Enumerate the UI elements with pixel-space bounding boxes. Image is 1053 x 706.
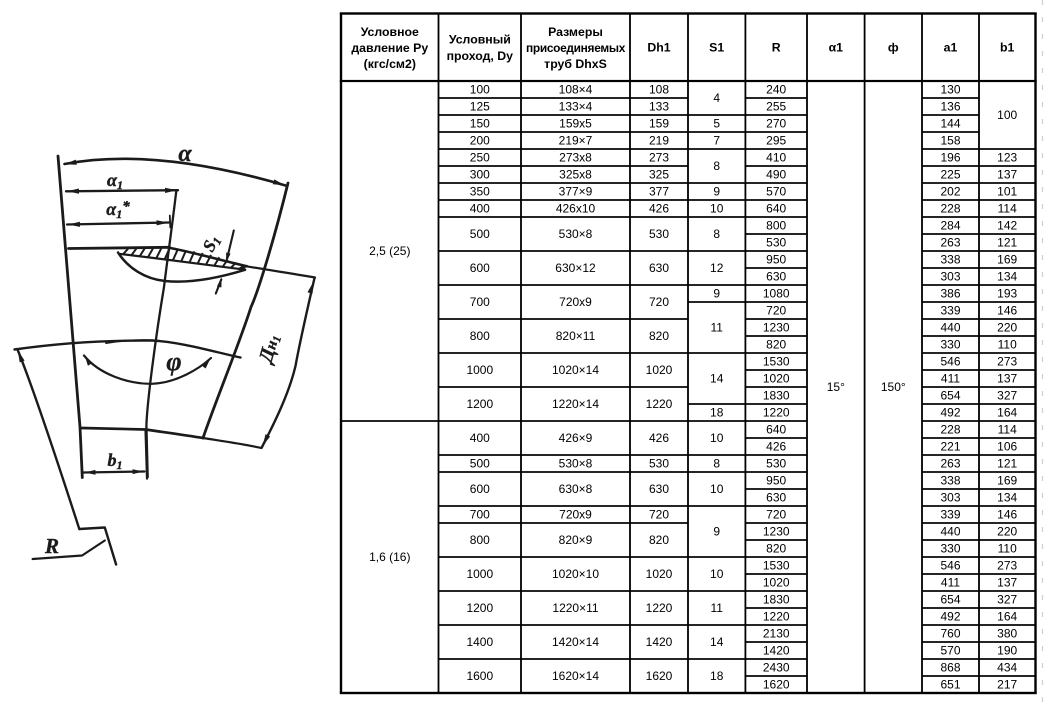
svg-text:221: 221 xyxy=(940,440,960,454)
svg-text:8: 8 xyxy=(713,457,720,471)
svg-text:110: 110 xyxy=(998,338,1017,352)
svg-text:1220: 1220 xyxy=(763,610,790,624)
svg-text:134: 134 xyxy=(997,491,1017,505)
svg-text:159: 159 xyxy=(649,117,669,131)
svg-text:377×9: 377×9 xyxy=(559,185,593,199)
svg-text:411: 411 xyxy=(941,372,960,386)
svg-text:800: 800 xyxy=(766,219,786,233)
svg-text:530: 530 xyxy=(649,457,669,471)
svg-text:820×11: 820×11 xyxy=(556,329,596,343)
svg-text:α1: α1 xyxy=(107,170,123,192)
svg-text:8: 8 xyxy=(713,227,720,241)
svg-text:800: 800 xyxy=(470,329,490,343)
svg-text:700: 700 xyxy=(470,508,490,522)
svg-text:1220×14: 1220×14 xyxy=(552,397,599,411)
svg-text:(кгс/см2): (кгс/см2) xyxy=(364,57,416,71)
svg-text:434: 434 xyxy=(997,661,1017,675)
svg-text:400: 400 xyxy=(470,202,490,216)
svg-text:7: 7 xyxy=(713,134,720,148)
svg-text:169: 169 xyxy=(997,474,1017,488)
svg-text:114: 114 xyxy=(998,202,1017,216)
svg-text:1000: 1000 xyxy=(466,363,493,377)
svg-text:164: 164 xyxy=(997,610,1017,624)
svg-text:273: 273 xyxy=(997,355,1017,369)
svg-text:1830: 1830 xyxy=(763,593,790,607)
svg-text:820×9: 820×9 xyxy=(559,533,593,547)
svg-text:α1*: α1* xyxy=(106,199,130,221)
svg-text:114: 114 xyxy=(998,423,1017,437)
svg-text:800: 800 xyxy=(470,533,490,547)
svg-text:2,5 (25): 2,5 (25) xyxy=(369,244,410,258)
svg-text:137: 137 xyxy=(997,372,1017,386)
svg-text:492: 492 xyxy=(940,406,960,420)
svg-text:263: 263 xyxy=(940,457,960,471)
svg-text:220: 220 xyxy=(997,525,1017,539)
svg-text:426×9: 426×9 xyxy=(559,431,593,445)
svg-text:386: 386 xyxy=(940,287,960,301)
svg-text:100: 100 xyxy=(997,108,1017,122)
svg-text:144: 144 xyxy=(940,117,960,131)
svg-text:1620: 1620 xyxy=(646,669,673,683)
svg-text:327: 327 xyxy=(997,593,1017,607)
svg-text:142: 142 xyxy=(997,219,1017,233)
svg-text:2430: 2430 xyxy=(763,661,790,675)
svg-text:330: 330 xyxy=(940,338,960,352)
svg-text:600: 600 xyxy=(470,482,490,496)
svg-text:146: 146 xyxy=(997,304,1017,318)
svg-text:1220: 1220 xyxy=(646,397,673,411)
svg-text:225: 225 xyxy=(940,168,960,182)
svg-text:250: 250 xyxy=(470,151,490,165)
svg-text:100: 100 xyxy=(470,83,490,97)
svg-text:108×4: 108×4 xyxy=(559,83,593,97)
svg-text:1200: 1200 xyxy=(466,397,493,411)
svg-text:121: 121 xyxy=(997,236,1017,250)
svg-text:1420×14: 1420×14 xyxy=(552,635,599,649)
svg-text:350: 350 xyxy=(470,185,490,199)
svg-text:325: 325 xyxy=(649,168,669,182)
svg-text:190: 190 xyxy=(997,644,1017,658)
svg-text:108: 108 xyxy=(649,83,669,97)
svg-text:1420: 1420 xyxy=(646,635,673,649)
svg-text:546: 546 xyxy=(940,355,960,369)
svg-text:380: 380 xyxy=(997,627,1017,641)
svg-text:14: 14 xyxy=(710,635,724,649)
svg-text:1620×14: 1620×14 xyxy=(552,669,599,683)
svg-text:720x9: 720x9 xyxy=(559,295,592,309)
svg-text:440: 440 xyxy=(940,321,960,335)
svg-text:1020: 1020 xyxy=(763,372,790,386)
svg-text:1220: 1220 xyxy=(646,601,673,615)
svg-text:240: 240 xyxy=(766,83,786,97)
svg-text:630×12: 630×12 xyxy=(555,261,596,275)
svg-text:630×8: 630×8 xyxy=(559,482,593,496)
svg-text:820: 820 xyxy=(766,542,786,556)
svg-text:18: 18 xyxy=(710,406,724,420)
svg-text:196: 196 xyxy=(940,151,960,165)
svg-text:1620: 1620 xyxy=(763,678,790,692)
svg-text:630: 630 xyxy=(649,482,669,496)
svg-text:950: 950 xyxy=(766,474,786,488)
svg-text:263: 263 xyxy=(940,236,960,250)
svg-text:1000: 1000 xyxy=(466,567,493,581)
svg-text:Условное: Условное xyxy=(361,25,419,39)
svg-text:640: 640 xyxy=(766,423,786,437)
svg-text:10: 10 xyxy=(710,202,724,216)
svg-text:219×7: 219×7 xyxy=(559,134,593,148)
svg-text:134: 134 xyxy=(997,270,1017,284)
svg-text:720: 720 xyxy=(649,508,669,522)
svg-text:1020×10: 1020×10 xyxy=(552,567,599,581)
svg-text:530×8: 530×8 xyxy=(559,457,593,471)
svg-text:4: 4 xyxy=(713,91,720,105)
svg-text:338: 338 xyxy=(940,474,960,488)
svg-text:255: 255 xyxy=(766,100,786,114)
svg-text:700: 700 xyxy=(470,295,490,309)
svg-text:530: 530 xyxy=(766,236,786,250)
svg-text:426: 426 xyxy=(766,440,786,454)
svg-text:проход, Dy: проход, Dy xyxy=(447,49,514,63)
svg-text:R: R xyxy=(44,534,59,558)
svg-text:273: 273 xyxy=(997,559,1017,573)
svg-text:530×8: 530×8 xyxy=(559,227,593,241)
svg-text:S1: S1 xyxy=(198,232,224,256)
svg-text:640: 640 xyxy=(766,202,786,216)
svg-text:820: 820 xyxy=(649,329,669,343)
svg-text:106: 106 xyxy=(997,440,1017,454)
svg-text:492: 492 xyxy=(940,610,960,624)
svg-text:a1: a1 xyxy=(944,41,958,55)
svg-text:1600: 1600 xyxy=(466,669,493,683)
svg-text:630: 630 xyxy=(649,261,669,275)
svg-text:α1: α1 xyxy=(829,41,844,55)
svg-text:121: 121 xyxy=(997,457,1017,471)
svg-text:270: 270 xyxy=(766,117,786,131)
svg-text:9: 9 xyxy=(713,185,720,199)
svg-text:5: 5 xyxy=(713,117,720,131)
svg-text:169: 169 xyxy=(997,253,1017,267)
svg-text:159x5: 159x5 xyxy=(559,117,592,131)
svg-text:654: 654 xyxy=(940,389,960,403)
svg-text:137: 137 xyxy=(997,168,1017,182)
svg-text:1020×14: 1020×14 xyxy=(552,363,599,377)
svg-text:500: 500 xyxy=(470,457,490,471)
svg-text:присоединяемых: присоединяемых xyxy=(526,41,626,55)
svg-text:570: 570 xyxy=(766,185,786,199)
svg-text:1420: 1420 xyxy=(763,644,790,658)
svg-text:820: 820 xyxy=(766,338,786,352)
svg-text:15°: 15° xyxy=(827,380,845,394)
svg-text:164: 164 xyxy=(997,406,1017,420)
svg-text:200: 200 xyxy=(470,134,490,148)
svg-text:Дн1: Дн1 xyxy=(254,332,284,367)
svg-text:530: 530 xyxy=(649,227,669,241)
svg-text:Размеры: Размеры xyxy=(548,25,603,39)
svg-text:1230: 1230 xyxy=(763,525,790,539)
svg-text:820: 820 xyxy=(649,533,669,547)
svg-text:202: 202 xyxy=(940,185,960,199)
svg-text:1020: 1020 xyxy=(763,576,790,590)
svg-text:530: 530 xyxy=(766,457,786,471)
svg-text:133×4: 133×4 xyxy=(559,100,593,114)
svg-text:303: 303 xyxy=(940,491,960,505)
svg-text:426: 426 xyxy=(649,431,669,445)
svg-text:300: 300 xyxy=(470,168,490,182)
svg-text:123: 123 xyxy=(997,151,1017,165)
svg-text:ф: ф xyxy=(888,41,899,55)
svg-text:630: 630 xyxy=(766,491,786,505)
svg-text:1020: 1020 xyxy=(646,567,673,581)
svg-text:1530: 1530 xyxy=(763,559,790,573)
svg-text:11: 11 xyxy=(710,601,723,615)
svg-text:228: 228 xyxy=(940,423,960,437)
svg-text:410: 410 xyxy=(766,151,786,165)
svg-text:9: 9 xyxy=(713,287,720,301)
svg-text:217: 217 xyxy=(997,678,1017,692)
svg-text:φ: φ xyxy=(166,347,181,376)
svg-text:2130: 2130 xyxy=(763,627,790,641)
svg-text:110: 110 xyxy=(998,542,1017,556)
svg-text:10: 10 xyxy=(710,482,724,496)
svg-text:1230: 1230 xyxy=(763,321,790,335)
svg-text:146: 146 xyxy=(997,508,1017,522)
svg-text:651: 651 xyxy=(940,678,960,692)
svg-text:950: 950 xyxy=(766,253,786,267)
svg-text:273: 273 xyxy=(649,151,669,165)
svg-text:101: 101 xyxy=(997,185,1017,199)
svg-text:9: 9 xyxy=(713,525,720,539)
svg-text:158: 158 xyxy=(940,134,960,148)
svg-text:α: α xyxy=(178,141,192,167)
svg-text:570: 570 xyxy=(940,644,960,658)
svg-text:10: 10 xyxy=(710,431,724,445)
svg-text:18: 18 xyxy=(710,669,724,683)
svg-text:426: 426 xyxy=(649,202,669,216)
svg-text:220: 220 xyxy=(997,321,1017,335)
svg-text:303: 303 xyxy=(940,270,960,284)
svg-text:1220×11: 1220×11 xyxy=(552,601,598,615)
svg-text:труб DhxS: труб DhxS xyxy=(544,57,607,71)
svg-text:720x9: 720x9 xyxy=(559,508,592,522)
svg-text:133: 133 xyxy=(649,100,669,114)
svg-text:228: 228 xyxy=(940,202,960,216)
svg-text:R: R xyxy=(772,41,781,55)
svg-text:546: 546 xyxy=(940,559,960,573)
svg-text:720: 720 xyxy=(649,295,669,309)
svg-text:10: 10 xyxy=(710,567,724,581)
svg-text:8: 8 xyxy=(713,159,720,173)
svg-text:b1: b1 xyxy=(1000,41,1015,55)
svg-text:130: 130 xyxy=(940,83,960,97)
svg-text:1220: 1220 xyxy=(763,406,790,420)
svg-text:284: 284 xyxy=(940,219,960,233)
svg-text:868: 868 xyxy=(940,661,960,675)
svg-text:339: 339 xyxy=(940,508,960,522)
svg-text:400: 400 xyxy=(470,431,490,445)
svg-text:Dh1: Dh1 xyxy=(647,41,670,55)
svg-text:b1: b1 xyxy=(108,450,123,472)
svg-text:630: 630 xyxy=(766,270,786,284)
svg-text:219: 219 xyxy=(649,134,669,148)
svg-text:760: 760 xyxy=(940,627,960,641)
svg-text:125: 125 xyxy=(470,100,490,114)
svg-text:654: 654 xyxy=(940,593,960,607)
svg-text:273x8: 273x8 xyxy=(559,151,592,165)
svg-text:14: 14 xyxy=(710,372,724,386)
svg-text:600: 600 xyxy=(470,261,490,275)
svg-text:12: 12 xyxy=(710,261,724,275)
svg-text:1400: 1400 xyxy=(466,635,493,649)
svg-text:давление Ру: давление Ру xyxy=(351,41,428,55)
svg-text:1830: 1830 xyxy=(763,389,790,403)
svg-text:377: 377 xyxy=(649,185,669,199)
svg-text:338: 338 xyxy=(940,253,960,267)
svg-text:490: 490 xyxy=(766,168,786,182)
svg-text:1,6 (16): 1,6 (16) xyxy=(369,550,410,564)
svg-text:440: 440 xyxy=(940,525,960,539)
svg-text:426x10: 426x10 xyxy=(556,202,596,216)
svg-text:150°: 150° xyxy=(881,380,906,394)
svg-text:500: 500 xyxy=(470,227,490,241)
svg-text:193: 193 xyxy=(997,287,1017,301)
svg-text:136: 136 xyxy=(940,100,960,114)
svg-text:295: 295 xyxy=(766,134,786,148)
svg-text:325x8: 325x8 xyxy=(559,168,592,182)
svg-text:720: 720 xyxy=(766,304,786,318)
svg-text:339: 339 xyxy=(940,304,960,318)
svg-text:1200: 1200 xyxy=(466,601,493,615)
svg-text:720: 720 xyxy=(766,508,786,522)
svg-text:S1: S1 xyxy=(709,41,724,55)
svg-text:1530: 1530 xyxy=(763,355,790,369)
svg-text:327: 327 xyxy=(997,389,1017,403)
svg-text:11: 11 xyxy=(710,321,723,335)
svg-text:411: 411 xyxy=(941,576,960,590)
svg-text:137: 137 xyxy=(997,576,1017,590)
svg-text:150: 150 xyxy=(470,117,490,131)
svg-text:Условный: Условный xyxy=(449,33,511,47)
svg-text:1020: 1020 xyxy=(646,363,673,377)
svg-text:330: 330 xyxy=(940,542,960,556)
svg-text:1080: 1080 xyxy=(763,287,790,301)
